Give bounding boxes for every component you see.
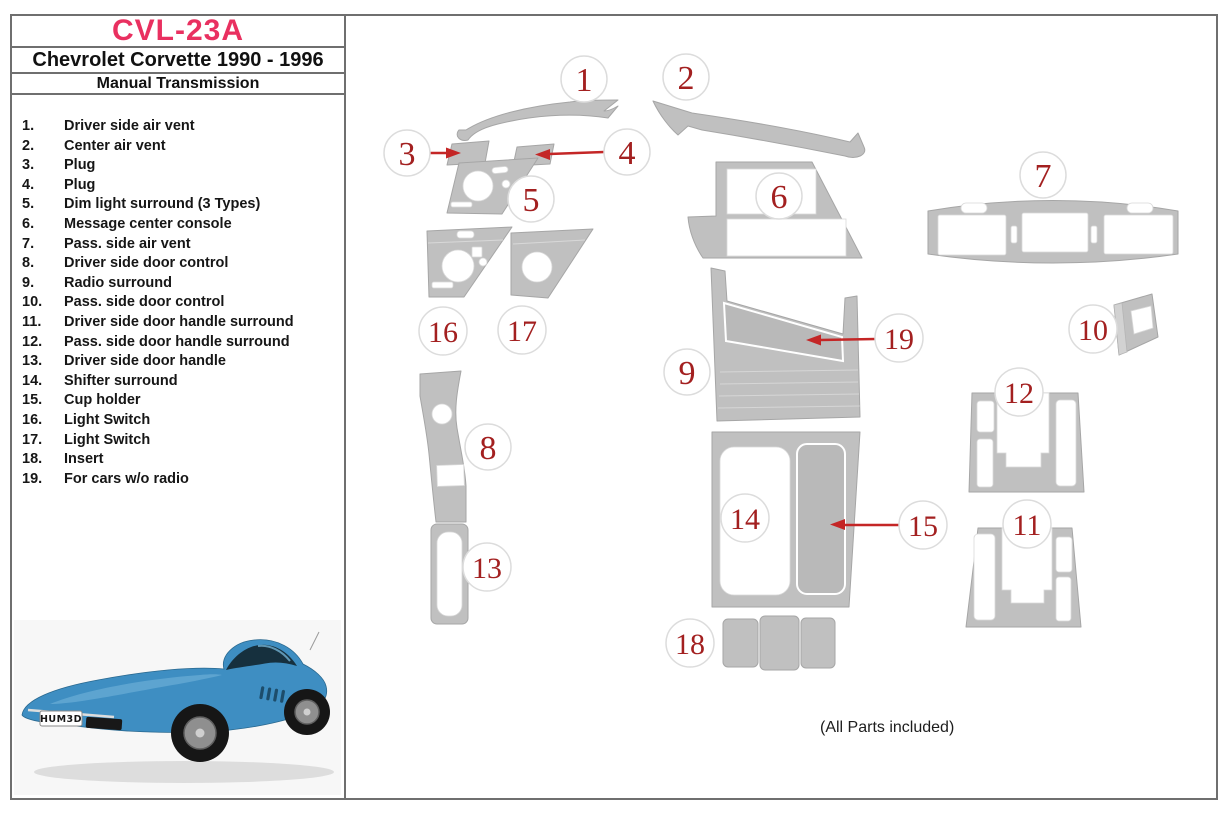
callout-badge-8: 8 — [465, 424, 511, 470]
part-shape-radio-surround — [711, 268, 860, 421]
callout-badge-17: 17 — [498, 306, 546, 354]
part-shape-driver-door-control — [420, 371, 466, 522]
callout-badge-1: 1 — [561, 56, 607, 102]
svg-text:12: 12 — [1004, 377, 1034, 410]
svg-text:9: 9 — [679, 355, 696, 392]
svg-text:2: 2 — [678, 60, 695, 97]
callout-badge-12: 12 — [995, 368, 1043, 416]
callout-badge-7: 7 — [1020, 152, 1066, 198]
svg-text:1: 1 — [576, 62, 593, 99]
callout-badge-15: 15 — [899, 501, 947, 549]
part-shape-pass-door-control — [1114, 294, 1158, 355]
svg-text:4: 4 — [619, 135, 636, 172]
part-shape-light-switch-16 — [427, 227, 512, 297]
parts-diagram-page: CVL-23A Chevrolet Corvette 1990 - 1996 M… — [0, 0, 1228, 829]
callout-badge-5: 5 — [508, 176, 554, 222]
part-shape-light-switch-17 — [511, 229, 593, 298]
callout-badge-11: 11 — [1003, 500, 1051, 548]
svg-text:11: 11 — [1013, 509, 1042, 542]
callout-badge-13: 13 — [463, 543, 511, 591]
svg-text:17: 17 — [507, 315, 537, 348]
part-shape-cup-holder — [797, 444, 845, 594]
diagram: 1 2 3 4 5 6 7 8 9 10 11 12 13 14 15 16 1… — [0, 0, 1228, 829]
callout-badge-10: 10 — [1069, 305, 1117, 353]
svg-text:6: 6 — [771, 179, 788, 216]
part-shape-pass-air-vent — [928, 201, 1178, 264]
svg-text:7: 7 — [1035, 158, 1052, 195]
svg-text:5: 5 — [523, 182, 540, 219]
svg-text:13: 13 — [472, 552, 502, 585]
svg-text:8: 8 — [480, 430, 497, 467]
callout-badge-14: 14 — [721, 494, 769, 542]
svg-text:19: 19 — [884, 323, 914, 356]
svg-text:10: 10 — [1078, 314, 1108, 347]
svg-text:18: 18 — [675, 628, 705, 661]
callout-badge-16: 16 — [419, 307, 467, 355]
part-shape-driver-door-handle — [431, 524, 468, 624]
part-shape-center-air-vent — [653, 101, 865, 157]
callout-badge-18: 18 — [666, 619, 714, 667]
callout-badge-3: 3 — [384, 130, 430, 176]
callout-badge-2: 2 — [663, 54, 709, 100]
part-shape-insert — [723, 616, 835, 670]
callout-badge-6: 6 — [756, 173, 802, 219]
callout-badge-9: 9 — [664, 349, 710, 395]
svg-text:14: 14 — [730, 503, 760, 536]
callout-badge-19: 19 — [875, 314, 923, 362]
svg-text:3: 3 — [399, 136, 416, 173]
part-shape-driver-air-vent — [457, 100, 618, 140]
svg-text:15: 15 — [908, 510, 938, 543]
svg-text:16: 16 — [428, 316, 458, 349]
callout-badge-4: 4 — [604, 129, 650, 175]
